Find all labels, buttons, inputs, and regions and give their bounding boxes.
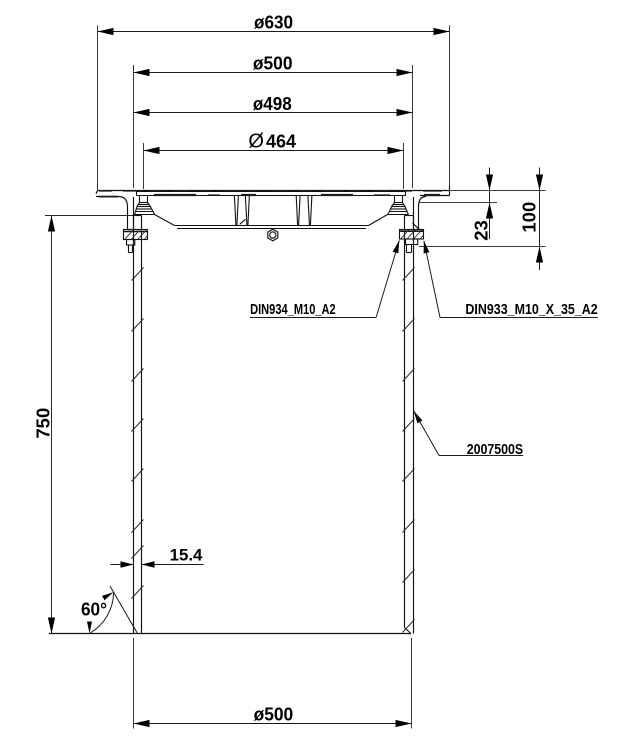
svg-text:ø498: ø498 — [253, 93, 292, 114]
svg-text:2007500S: 2007500S — [467, 441, 524, 458]
svg-text:DIN933_M10_X_35_A2: DIN933_M10_X_35_A2 — [465, 301, 597, 318]
svg-text:DIN934_M10_A2: DIN934_M10_A2 — [250, 301, 336, 318]
svg-text:ø630: ø630 — [254, 12, 293, 33]
svg-text:60°: 60° — [81, 600, 107, 620]
svg-text:Ø464: Ø464 — [248, 131, 296, 153]
svg-text:23: 23 — [470, 220, 491, 241]
svg-text:15.4: 15.4 — [170, 547, 204, 565]
svg-text:ø500: ø500 — [253, 53, 293, 74]
svg-text:ø500: ø500 — [254, 704, 294, 725]
svg-text:100: 100 — [518, 202, 539, 233]
svg-text:750: 750 — [33, 408, 54, 439]
